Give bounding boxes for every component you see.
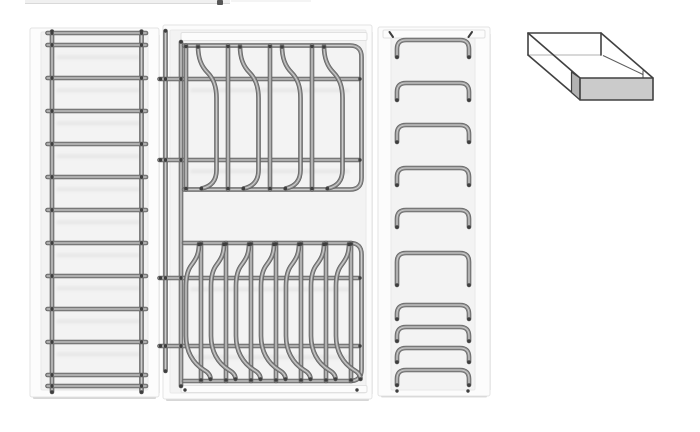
wire-joint [358, 344, 361, 347]
wire-joint [358, 158, 361, 161]
wire-joint [395, 383, 398, 386]
middle-tray-top-strip [181, 33, 367, 41]
wire-joint [326, 187, 329, 190]
right-tray-panel [378, 27, 491, 397]
wire-joint [395, 360, 398, 363]
wire-joint [226, 187, 229, 190]
wire-joint [467, 283, 470, 286]
wire-joint [274, 378, 277, 381]
wire-joint [284, 187, 287, 190]
wire-joint [50, 109, 53, 112]
wire-joint [140, 373, 143, 376]
wire-joint [140, 384, 143, 387]
wire-joint [324, 378, 327, 381]
wire-joint [222, 243, 225, 246]
wire-joint [234, 377, 237, 380]
wire-joint [199, 378, 202, 381]
wire-joint [179, 77, 182, 80]
wire-joint [322, 243, 325, 246]
wire-joint [247, 243, 250, 246]
wire-joint [310, 187, 313, 190]
wire-joint [50, 274, 53, 277]
wire-joint [310, 45, 313, 48]
wire-joint [238, 45, 241, 48]
wire-joint [164, 344, 167, 347]
wire-joint [299, 378, 302, 381]
wire-joint [164, 276, 167, 279]
wire-joint [50, 142, 53, 145]
wire-joint [140, 241, 143, 244]
wire-joint [395, 317, 398, 320]
wire-joint [466, 389, 469, 392]
wire-joint [395, 283, 398, 286]
wire-joint [280, 45, 283, 48]
wire-joint [140, 109, 143, 112]
wire-joint [179, 276, 182, 279]
wire-joint [249, 378, 252, 381]
wire-joint [183, 388, 186, 391]
wire-joint [395, 55, 398, 58]
wire-joint [395, 183, 398, 186]
wire-joint [467, 317, 470, 320]
left-tray-panel [30, 28, 160, 399]
wire-joint [179, 40, 182, 43]
wire-joint [322, 45, 325, 48]
wire-joint [50, 208, 53, 211]
wire-joint [140, 76, 143, 79]
middle-tray-panel [159, 25, 373, 401]
wire-joint [50, 241, 53, 244]
wire-joint [467, 140, 470, 143]
wire-joint [140, 43, 143, 46]
wire-joint [179, 344, 182, 347]
wire-joint [209, 377, 212, 380]
wire-joint [259, 377, 262, 380]
wire-joint [159, 158, 162, 161]
wire-joint [140, 142, 143, 145]
wire-joint [467, 183, 470, 186]
wire-joint [140, 390, 143, 393]
wire-joint [197, 243, 200, 246]
wire-joint [309, 377, 312, 380]
wire-joint [140, 307, 143, 310]
middle-tray-bottom-strip [181, 386, 367, 393]
wire-joint [284, 377, 287, 380]
wire-joint [349, 378, 352, 381]
wire-joint [50, 307, 53, 310]
wire-joint [347, 243, 350, 246]
wire-joint [395, 140, 398, 143]
wire-joint [50, 30, 53, 33]
wire-joint [159, 344, 162, 347]
wire-joint [50, 340, 53, 343]
wire-joint [268, 45, 271, 48]
wire-joint [164, 77, 167, 80]
wire-joint [164, 369, 167, 372]
wire-joint [140, 30, 143, 33]
wire-joint [226, 45, 229, 48]
wire-joint [355, 388, 358, 391]
wire-joint [50, 390, 53, 393]
box-right-top-edge [601, 33, 653, 78]
wire-joint [140, 274, 143, 277]
wire-joint [179, 384, 182, 387]
wire-joint [395, 339, 398, 342]
wire-joint [50, 76, 53, 79]
wire-joint [159, 276, 162, 279]
wire-joint [184, 187, 187, 190]
wire-joint [140, 175, 143, 178]
wire-joint [272, 243, 275, 246]
wire-joint [50, 384, 53, 387]
wire-joint [140, 208, 143, 211]
wire-joint [140, 340, 143, 343]
wire-joint [50, 175, 53, 178]
wire-joint [467, 98, 470, 101]
wire-joint [467, 225, 470, 228]
wire-joint [358, 276, 361, 279]
wire-joint [358, 77, 361, 80]
wire-joint [50, 43, 53, 46]
wire-joint [467, 360, 470, 363]
wire-joint [224, 378, 227, 381]
wire-joint [395, 389, 398, 392]
wire-joint [467, 339, 470, 342]
wire-joint [184, 45, 187, 48]
wire-joint [395, 98, 398, 101]
wire-joint [359, 377, 362, 380]
organizer-artwork [0, 0, 700, 432]
wire-joint [467, 55, 470, 58]
wire-joint [179, 158, 182, 161]
wire-joint [50, 373, 53, 376]
wire-joint [159, 77, 162, 80]
wire-joint [164, 29, 167, 32]
wire-joint [242, 187, 245, 190]
wire-joint [334, 377, 337, 380]
wire-joint [297, 243, 300, 246]
box-front-face [580, 78, 653, 100]
wire-joint [200, 187, 203, 190]
wire-joint [196, 45, 199, 48]
wire-joint [164, 158, 167, 161]
wire-joint [467, 383, 470, 386]
wire-joint [268, 187, 271, 190]
wire-joint [395, 225, 398, 228]
product-illustration [0, 0, 700, 432]
box-3d-icon [528, 33, 653, 100]
